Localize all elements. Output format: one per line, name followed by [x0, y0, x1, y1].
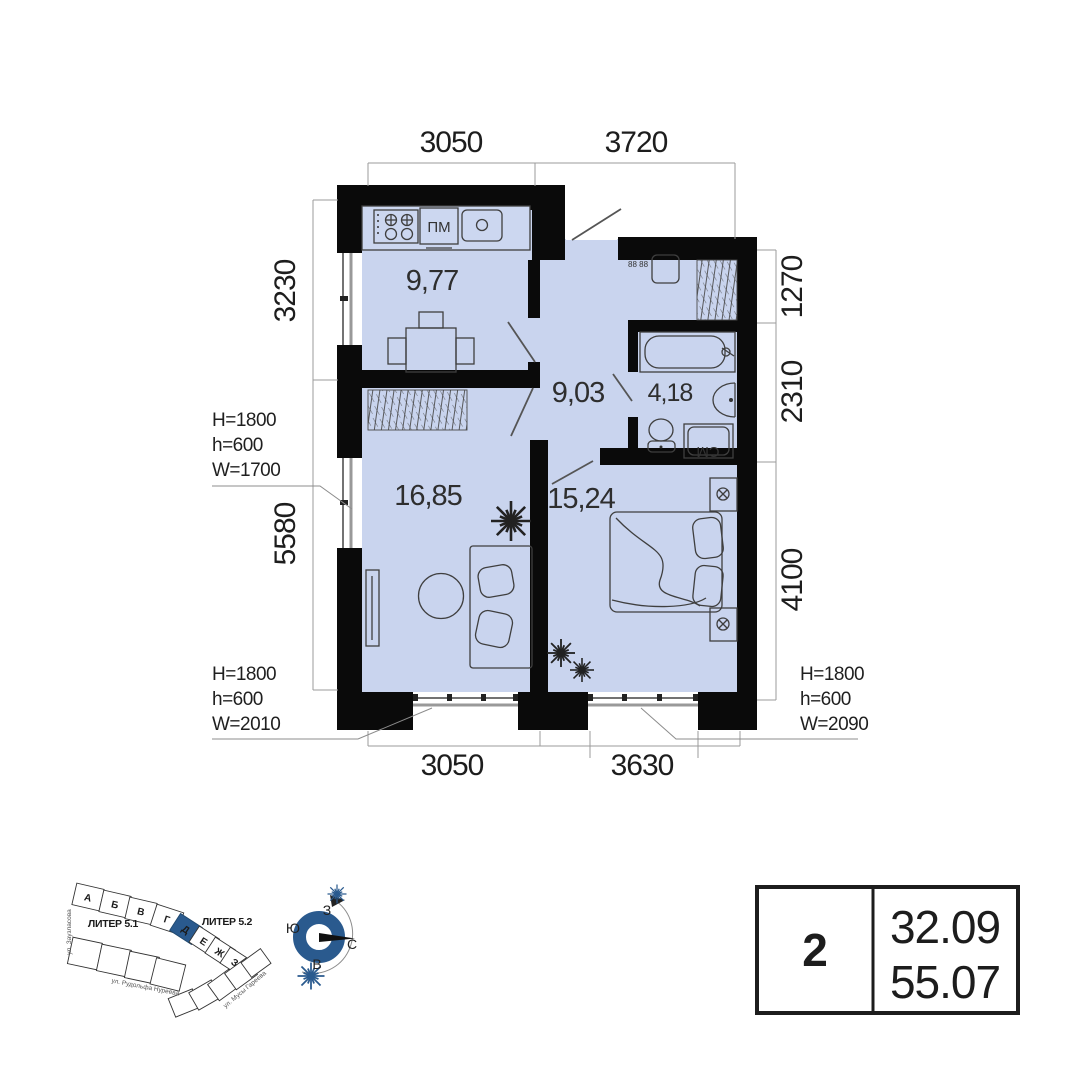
insolation-point-icon — [547, 639, 575, 667]
info-table: 2 32.09 55.07 — [757, 887, 1018, 1013]
dim-top-1: 3050 — [420, 126, 483, 159]
site-plan: А Б В Г Д Е Ж З — [66, 883, 271, 1017]
window-annotation-left: H=1800 h=600 W=1700 — [212, 410, 352, 509]
compass-east-label: В — [312, 956, 321, 972]
street-label-left: ул. Заузласова — [66, 909, 73, 955]
floorplan-page: ПМ 88 88 — [0, 0, 1080, 1080]
washer-label: СМ — [696, 443, 719, 460]
annotation-line: h=600 — [212, 689, 263, 710]
compass-south-label: Ю — [286, 920, 300, 936]
annotation-line: H=1800 — [800, 664, 864, 685]
living-bottom-window — [413, 692, 518, 730]
bedroom-bottom-window — [588, 692, 698, 730]
dim-top-2: 3720 — [605, 126, 668, 159]
annotation-line: h=600 — [800, 689, 851, 710]
building-section: А — [72, 883, 104, 911]
annotation-line: h=600 — [212, 435, 263, 456]
kitchen-window — [337, 253, 362, 345]
liter-left-label: ЛИТЕР 5.1 — [88, 918, 139, 930]
annotation-line: H=1800 — [212, 410, 276, 431]
insolation-point-icon — [570, 658, 594, 682]
dim-left-1: 3230 — [269, 259, 302, 322]
room-area-kitchen: 9,77 — [406, 265, 458, 297]
compass-north-label: С — [347, 936, 357, 952]
apartment-plan: ПМ 88 88 — [337, 185, 757, 730]
room-area-hall: 9,03 — [552, 377, 604, 409]
compass-west-label: З — [323, 902, 331, 918]
dim-bottom-2: 3630 — [611, 749, 674, 782]
info-living-area: 32.09 — [890, 901, 1000, 953]
room-area-living: 16,85 — [394, 480, 462, 512]
dim-bottom-1: 3050 — [421, 749, 484, 782]
living-side-window — [337, 458, 362, 548]
plant-icon — [491, 501, 531, 541]
liter-right-label: ЛИТЕР 5.2 — [202, 916, 253, 928]
wardrobe-icon — [368, 390, 467, 430]
info-total-area: 55.07 — [890, 956, 1000, 1008]
room-area-bath: 4,18 — [648, 379, 693, 407]
room-area-bedroom: 15,24 — [547, 483, 615, 515]
dim-right-2: 2310 — [776, 360, 809, 423]
hall-closet-icon — [697, 260, 737, 320]
annotation-line: W=1700 — [212, 460, 280, 481]
meter-label: 88 88 — [628, 260, 649, 269]
dishwasher-label: ПМ — [427, 219, 450, 236]
floorplan-canvas: ПМ 88 88 — [0, 0, 1080, 1080]
annotation-line: H=1800 — [212, 664, 276, 685]
annotation-line: W=2090 — [800, 714, 868, 735]
dim-right-1: 1270 — [776, 255, 809, 318]
annotation-line: W=2010 — [212, 714, 280, 735]
dim-right-3: 4100 — [776, 548, 809, 611]
compass: З Ю С В — [286, 885, 357, 990]
info-rooms-count: 2 — [802, 924, 828, 976]
dim-left-2: 5580 — [269, 502, 302, 565]
sun-icon — [328, 885, 347, 904]
